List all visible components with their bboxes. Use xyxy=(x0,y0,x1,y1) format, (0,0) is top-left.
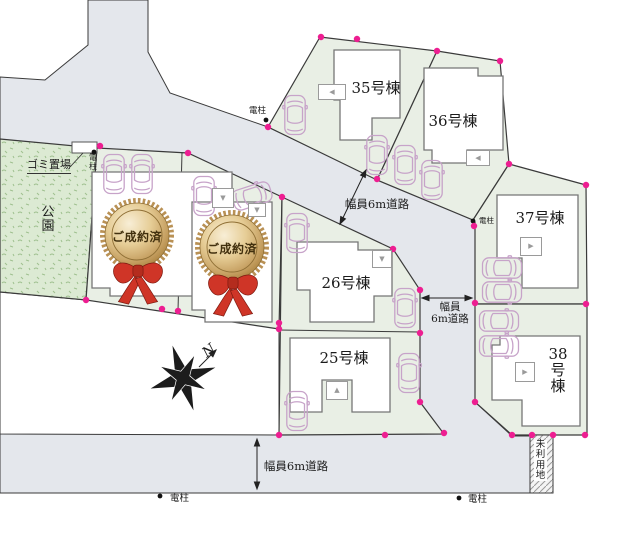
boundary-dot xyxy=(417,330,423,336)
utility-pole-label: 電柱 xyxy=(249,104,266,116)
utility-pole-label: 電柱 xyxy=(468,491,487,505)
entrance-right-icon: ▶ xyxy=(522,369,527,376)
lot-36-label: 36号棟 xyxy=(423,110,483,131)
entrance-down-icon: ▼ xyxy=(254,207,259,214)
boundary-dot xyxy=(472,399,478,405)
utility-pole-dot xyxy=(457,496,462,501)
utility-pole-dot xyxy=(471,219,476,224)
entrance-marker-sold-2: ▼ xyxy=(248,203,266,217)
utility-pole-label: 電柱 xyxy=(170,490,189,504)
boundary-dot xyxy=(276,320,282,326)
utility-pole-dot xyxy=(264,118,269,123)
boundary-dot xyxy=(582,432,588,438)
boundary-dot xyxy=(382,432,388,438)
entrance-marker-sold-1: ▼ xyxy=(212,188,234,208)
sold-badge-label: ご成約済 xyxy=(198,240,266,257)
lot-37-label: 37号棟 xyxy=(510,207,570,228)
boundary-dot xyxy=(529,432,535,438)
boundary-dot xyxy=(509,432,515,438)
boundary-dot xyxy=(434,48,440,54)
boundary-dot xyxy=(441,430,447,436)
road-width-label-bottom: 幅員6m道路 xyxy=(260,458,332,474)
lot-26-label: 26号棟 xyxy=(316,272,376,293)
entrance-up-icon: ▲ xyxy=(334,387,339,394)
boundary-dot xyxy=(471,223,477,229)
entrance-marker-36: ◀ xyxy=(466,150,490,166)
boundary-dot xyxy=(583,301,589,307)
boundary-dot xyxy=(354,36,360,42)
sold-badge-label: ご成約済 xyxy=(103,228,171,245)
entrance-marker-26: ▼ xyxy=(372,250,392,268)
entrance-down-icon: ▼ xyxy=(220,195,225,202)
entrance-marker-38: ▶ xyxy=(515,362,535,382)
lot-35-label: 35号棟 xyxy=(346,77,406,98)
entrance-marker-25: ▲ xyxy=(326,381,348,400)
entrance-left-icon: ◀ xyxy=(475,155,480,162)
entrance-down-icon: ▼ xyxy=(379,256,384,263)
boundary-dot xyxy=(276,432,282,438)
boundary-dot xyxy=(279,194,285,200)
utility-pole-dot xyxy=(158,494,163,499)
boundary-dot xyxy=(417,399,423,405)
utility-pole-label: 電柱 xyxy=(479,215,494,226)
road-width-label-middle-line1: 幅員 xyxy=(427,301,473,313)
road-width-label-upper: 幅員6m道路 xyxy=(337,196,417,212)
lot-38-label: 38号棟 xyxy=(548,346,568,395)
entrance-marker-37: ▶ xyxy=(520,237,542,256)
entrance-right-icon: ▶ xyxy=(528,243,533,250)
boundary-dot xyxy=(159,306,165,312)
boundary-dot xyxy=(506,161,512,167)
boundary-dot xyxy=(185,150,191,156)
lot-25-label: 25号棟 xyxy=(314,347,374,368)
boundary-dot xyxy=(583,182,589,188)
site-plan: 35号棟 36号棟 37号棟 38号棟 26号棟 25号棟 公園 ゴミ置場 未利… xyxy=(0,0,634,543)
park-label: 公園 xyxy=(40,206,56,234)
boundary-dot xyxy=(374,176,380,182)
utility-pole-label: 電柱 xyxy=(88,154,98,171)
boundary-dot xyxy=(417,287,423,293)
garbage-station-label: ゴミ置場 xyxy=(27,156,71,174)
boundary-dot xyxy=(276,326,282,332)
entrance-marker-35: ◀ xyxy=(318,84,346,100)
road-width-label-middle-line2: 6m道路 xyxy=(427,313,473,325)
road-width-label-middle: 幅員 6m道路 xyxy=(427,301,473,325)
boundary-dot xyxy=(550,432,556,438)
boundary-dot xyxy=(318,34,324,40)
boundary-dot xyxy=(265,124,271,130)
boundary-dot xyxy=(497,58,503,64)
boundary-dot xyxy=(175,308,181,314)
boundary-dot xyxy=(97,143,103,149)
boundary-dot xyxy=(83,297,89,303)
entrance-left-icon: ◀ xyxy=(329,89,334,96)
unused-land-label: 未利用地 xyxy=(534,440,547,481)
